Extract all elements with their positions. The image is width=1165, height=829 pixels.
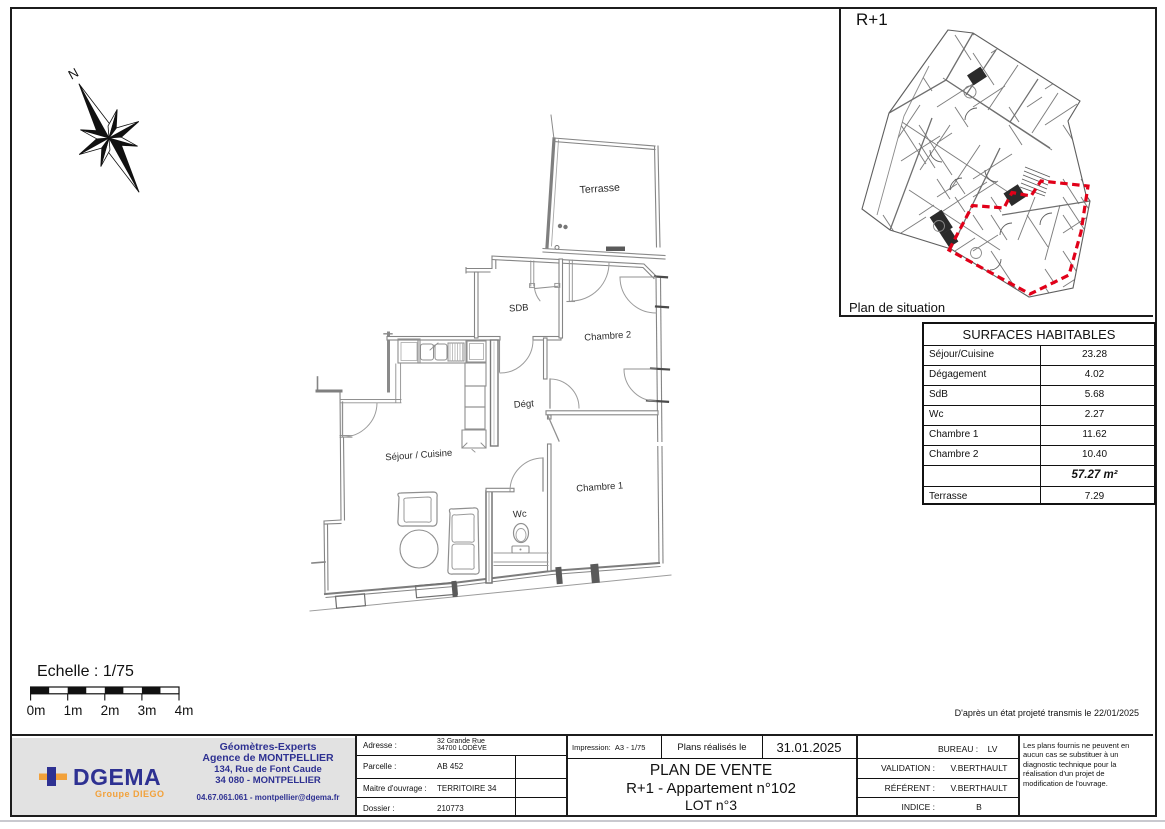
svg-text:4m: 4m <box>175 703 194 718</box>
svg-text:1m: 1m <box>64 703 83 718</box>
svg-text:2m: 2m <box>101 703 120 718</box>
svg-text:0m: 0m <box>27 703 46 718</box>
svg-text:3m: 3m <box>138 703 157 718</box>
